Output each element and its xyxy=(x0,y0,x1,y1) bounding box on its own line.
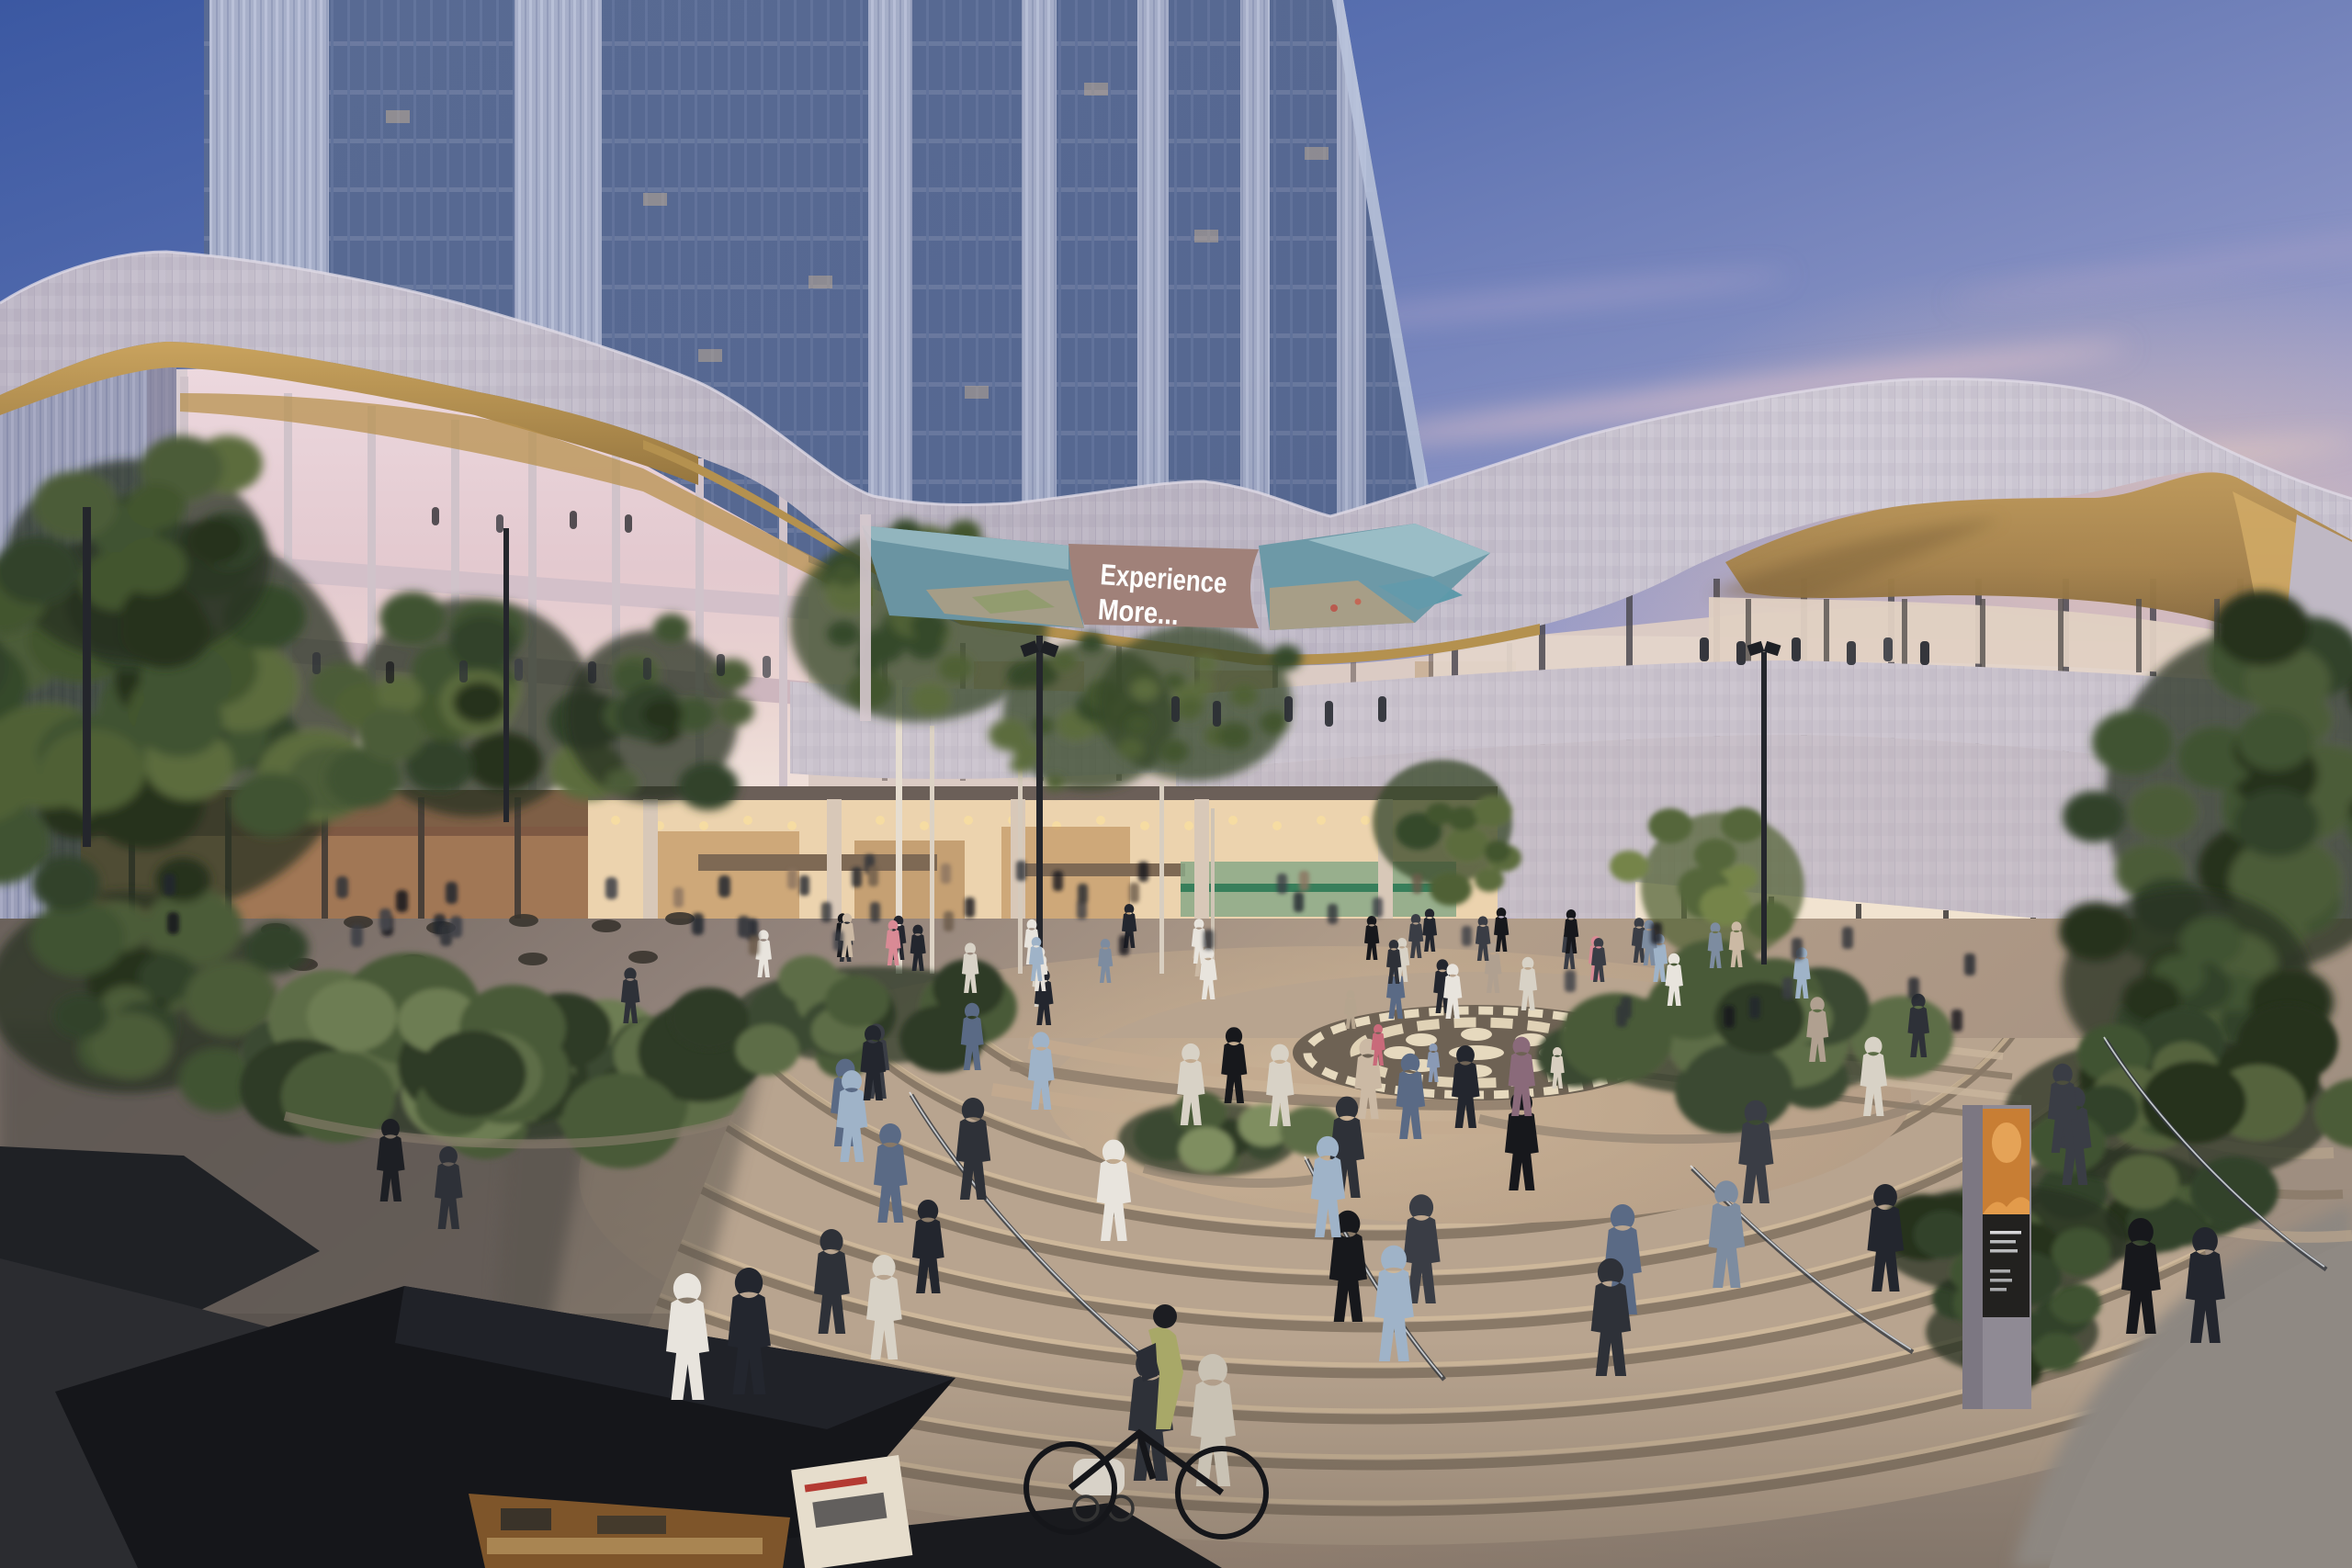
svg-text:More...: More... xyxy=(1097,592,1180,631)
